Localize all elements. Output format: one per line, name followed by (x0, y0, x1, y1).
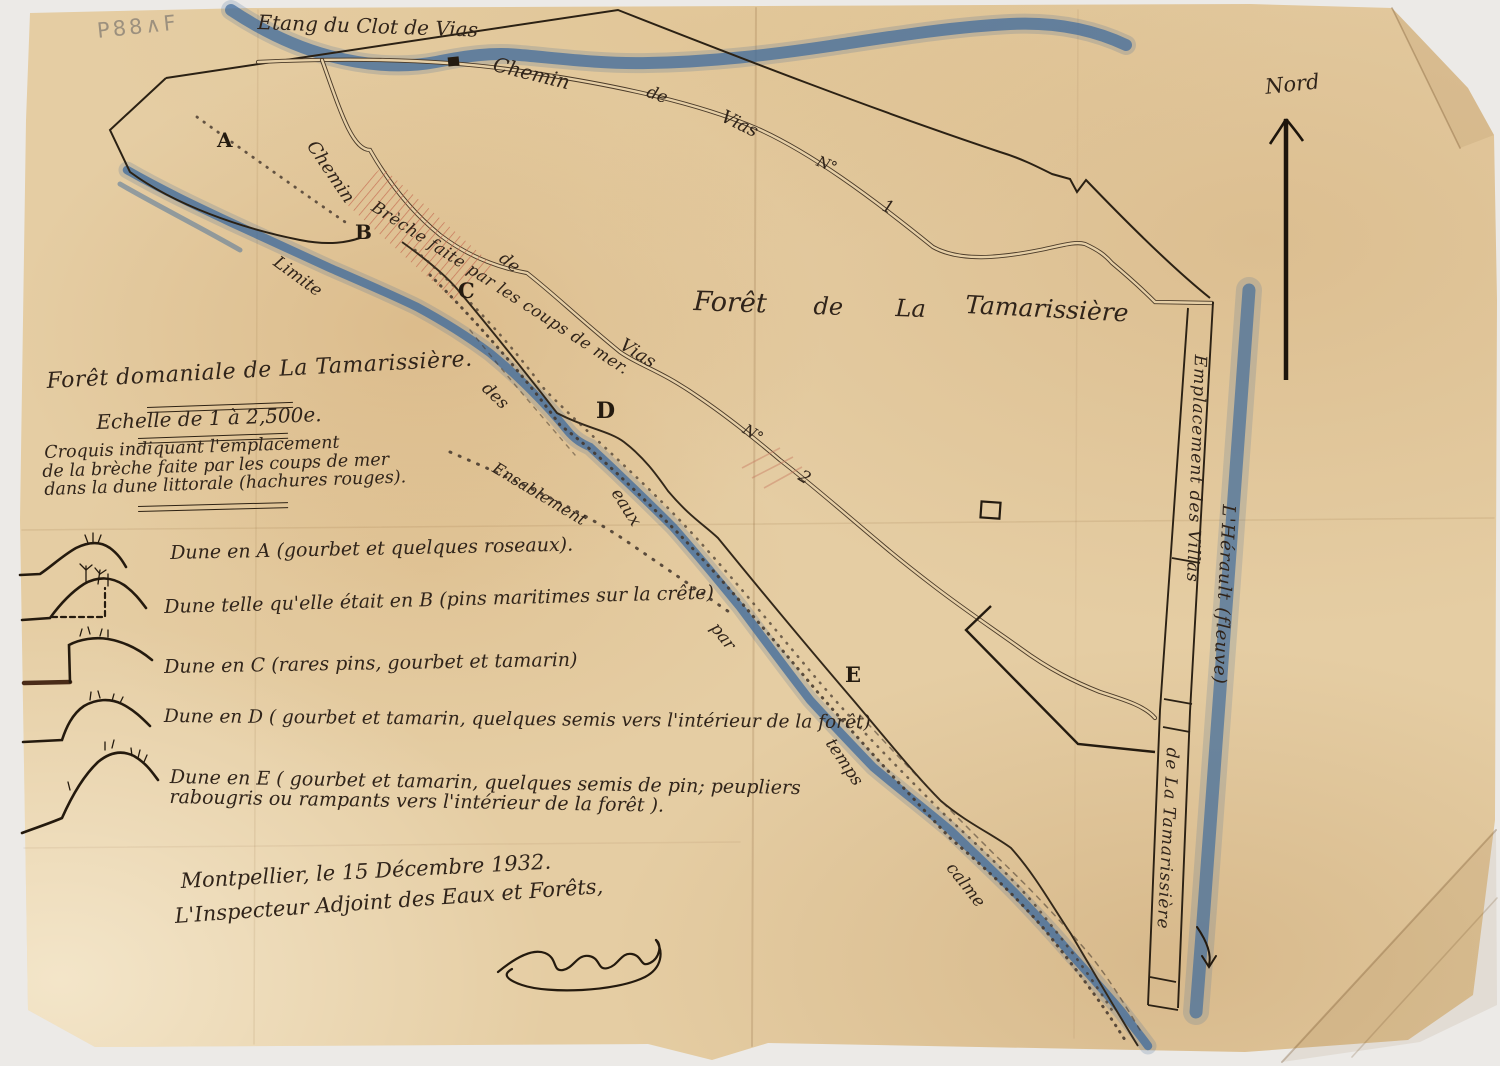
north-arrow-icon (1270, 119, 1303, 380)
dune-profile-d (23, 691, 150, 742)
point-b: B (355, 222, 372, 243)
chemin-vias-2-road (322, 60, 1155, 718)
forest-title-la: La (895, 296, 926, 322)
forest-building-icon (980, 501, 1000, 518)
point-c: C (458, 280, 475, 302)
dune-profile-a (20, 533, 126, 575)
signature-flourish (498, 940, 661, 990)
dune-profile-e (22, 740, 158, 833)
chemin-vias-1-road (258, 60, 1212, 303)
point-a: A (217, 130, 233, 151)
forest-title-foret: Forêt (693, 288, 767, 319)
forest-title-de: de (813, 294, 843, 320)
point-d: D (596, 400, 615, 423)
point-e: E (845, 664, 861, 686)
dune-profile-c (24, 627, 152, 683)
north-label: Nord (1264, 70, 1321, 98)
dune-profile-sketches (20, 533, 158, 833)
scanned-map-sheet: P88∧F Etang du Clot de Vias Nord Chemin … (0, 0, 1500, 1066)
etang-building-icon (448, 56, 460, 66)
